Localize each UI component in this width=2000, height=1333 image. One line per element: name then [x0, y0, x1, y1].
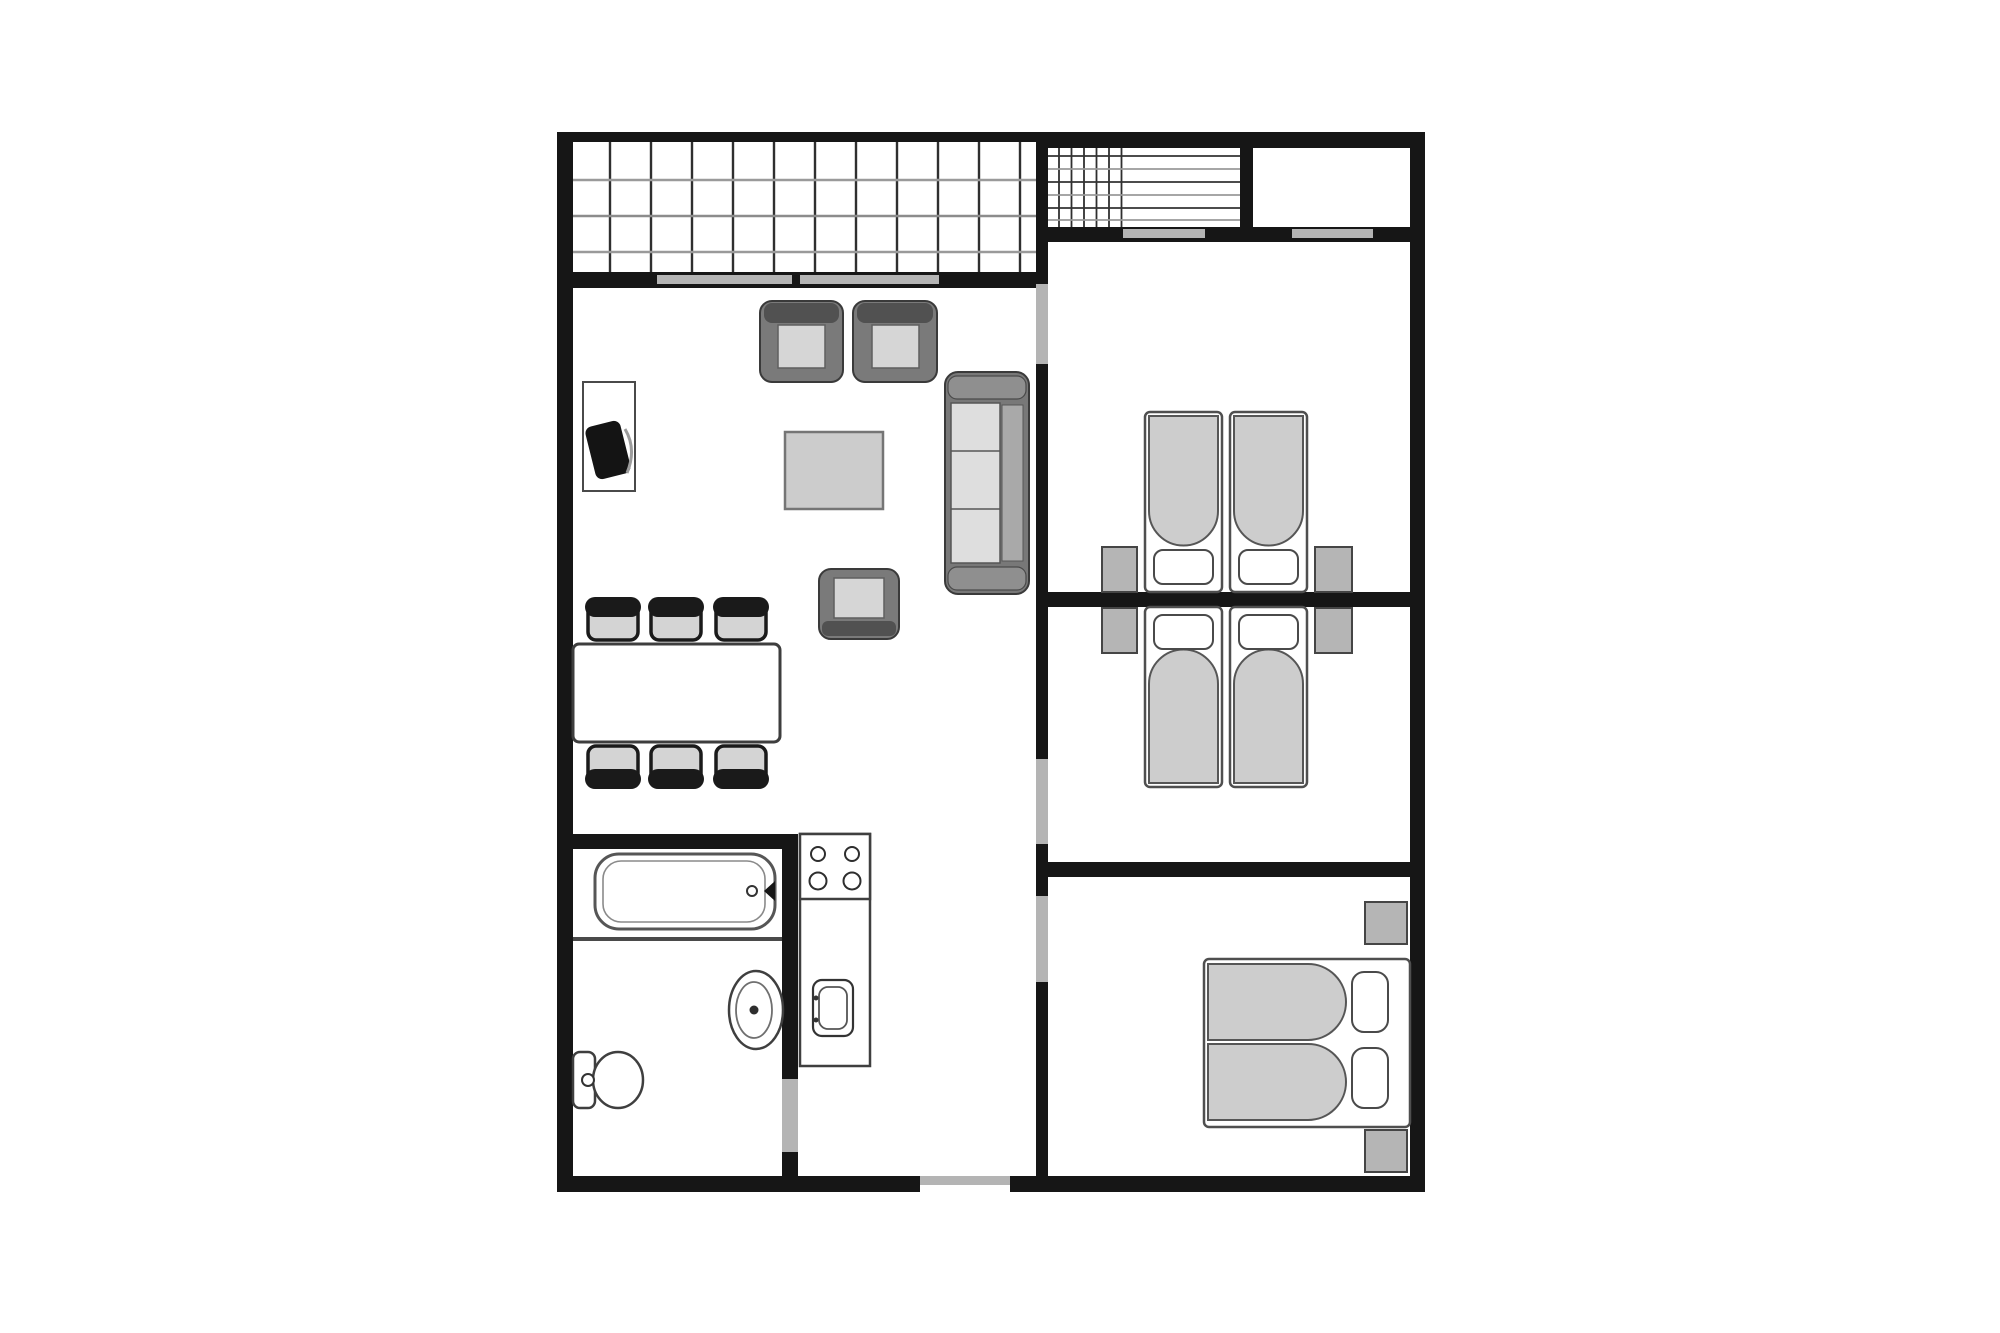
- coffee-table: [785, 432, 883, 509]
- sofa: [1002, 405, 1023, 561]
- bedroom1-bedroom2-divider-wall: [1048, 592, 1410, 607]
- kitchen-sink: [814, 1018, 819, 1023]
- bedroom2-single-bed: [1234, 650, 1303, 784]
- bedroom1-single-bed: [1154, 550, 1213, 584]
- kitchen-sink: [814, 996, 819, 1001]
- terrace-sliding-door-right: [800, 275, 939, 284]
- outer-wall-top: [1036, 132, 1425, 148]
- bedroom2-single-bed: [1239, 615, 1298, 649]
- dining-chair: [585, 769, 641, 789]
- closet-door: [1292, 229, 1373, 238]
- outer-wall-left: [557, 132, 573, 1192]
- bathroom-partition-line: [573, 937, 782, 941]
- bedroom1-single-bed: [1149, 416, 1218, 546]
- entrance-threshold: [920, 1185, 1010, 1192]
- dining-chair: [713, 769, 769, 789]
- toilet: [582, 1074, 594, 1086]
- armchair: [857, 303, 933, 323]
- dining-chair: [585, 597, 641, 617]
- armchair: [764, 303, 839, 323]
- bathroom-top-wall: [573, 834, 798, 849]
- armchair: [834, 578, 884, 618]
- floor-plan: [557, 132, 1425, 1192]
- balcony2-closet-divider-wall: [1240, 148, 1253, 242]
- outer-wall-right: [1410, 132, 1425, 1192]
- bedroom3-double-bed: [1208, 1044, 1346, 1120]
- bedroom2-single-bed: [1154, 615, 1213, 649]
- kitchen-stove: [800, 834, 870, 899]
- balcony2-door: [1123, 229, 1205, 238]
- bedroom3-nightstand: [1365, 902, 1407, 944]
- kitchen-stove: [810, 873, 827, 890]
- terrace-sliding-door-left: [657, 275, 792, 284]
- kitchen-stove: [845, 847, 859, 861]
- bedroom1-nightstand: [1102, 547, 1137, 592]
- bedroom1-single-bed: [1234, 416, 1303, 546]
- dining-table: [573, 644, 780, 742]
- sofa: [948, 376, 1026, 399]
- bedroom2-nightstand: [1315, 608, 1352, 653]
- bedroom1-single-bed: [1239, 550, 1298, 584]
- washbasin: [750, 1006, 759, 1015]
- bathroom-door: [782, 1079, 798, 1152]
- bedroom1-nightstand: [1315, 547, 1352, 592]
- bedroom2-single-bed: [1149, 650, 1218, 784]
- dining-chair: [648, 597, 704, 617]
- sofa: [948, 567, 1026, 590]
- armchair: [778, 325, 825, 368]
- bedroom3-double-bed: [1208, 964, 1346, 1040]
- entrance-door: [920, 1176, 1010, 1185]
- bedroom3-nightstand: [1365, 1130, 1407, 1172]
- bedroom2-bedroom3-divider-wall: [1048, 862, 1410, 877]
- kitchen-stove: [811, 847, 825, 861]
- bedroom3-double-bed: [1352, 972, 1388, 1032]
- armchair: [822, 621, 896, 636]
- bedroom3-door: [1036, 896, 1048, 982]
- armchair: [872, 325, 919, 368]
- bedroom3-double-bed: [1352, 1048, 1388, 1108]
- bedroom2-door: [1036, 759, 1048, 844]
- page-background: [0, 0, 2000, 1333]
- dining-chair: [648, 769, 704, 789]
- bedroom1-door: [1036, 284, 1048, 364]
- dining-chair: [713, 597, 769, 617]
- sofa: [951, 403, 1000, 563]
- kitchen-stove: [844, 873, 861, 890]
- toilet: [593, 1052, 643, 1108]
- bedroom2-nightstand: [1102, 608, 1137, 653]
- bathtub: [747, 886, 757, 896]
- terrace-parapet-wall: [557, 132, 1036, 142]
